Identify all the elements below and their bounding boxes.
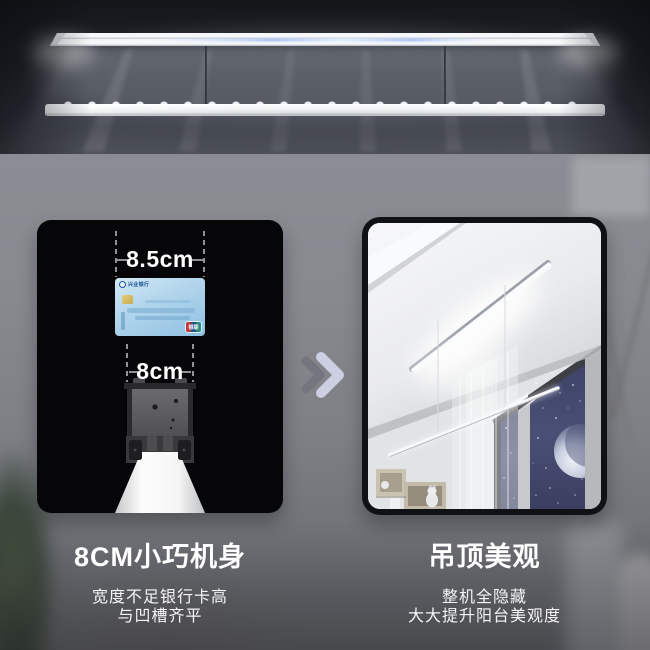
double-chevron-right-icon: [299, 351, 347, 399]
hero-vignette: [0, 0, 650, 154]
bank-logo-icon: [119, 281, 126, 288]
balcony-scene-illustration: [368, 223, 601, 509]
measure-label-card-width: 8.5cm: [37, 247, 283, 271]
card-artwork: [127, 308, 195, 313]
blurred-window-light: [572, 156, 650, 216]
feature-caption-size: 8CM小巧机身 宽度不足银行卡高 与凹槽齐平: [37, 542, 283, 626]
card-bank-logo: 兴业银行: [119, 281, 149, 288]
vase: [390, 497, 400, 509]
card-chip: [122, 295, 133, 304]
feature-description: 宽度不足银行卡高 与凹槽齐平: [37, 588, 283, 626]
bank-card: 兴业银行 银联: [115, 278, 205, 336]
feature-panel-ceiling: [362, 217, 607, 515]
unionpay-logo: 银联: [186, 322, 201, 332]
card-artwork: [135, 316, 190, 320]
feature-title: 吊顶美观: [362, 542, 607, 573]
hero-image: [0, 0, 650, 154]
machine-cross-section: [115, 378, 205, 513]
measure-label-body-width: 8cm: [37, 359, 283, 383]
feature-panel-size: 8.5cm 8cm 兴业银行 银联: [37, 220, 283, 513]
feature-caption-ceiling: 吊顶美观 整机全隐藏 大大提升阳台美观度: [362, 542, 607, 626]
card-artwork: [121, 312, 125, 330]
blurred-branch: [611, 212, 650, 417]
product-infographic: 8.5cm 8cm 兴业银行 银联: [0, 0, 650, 650]
card-artwork: [145, 300, 191, 303]
feature-description: 整机全隐藏 大大提升阳台美观度: [362, 588, 607, 626]
feature-title: 8CM小巧机身: [37, 542, 283, 573]
